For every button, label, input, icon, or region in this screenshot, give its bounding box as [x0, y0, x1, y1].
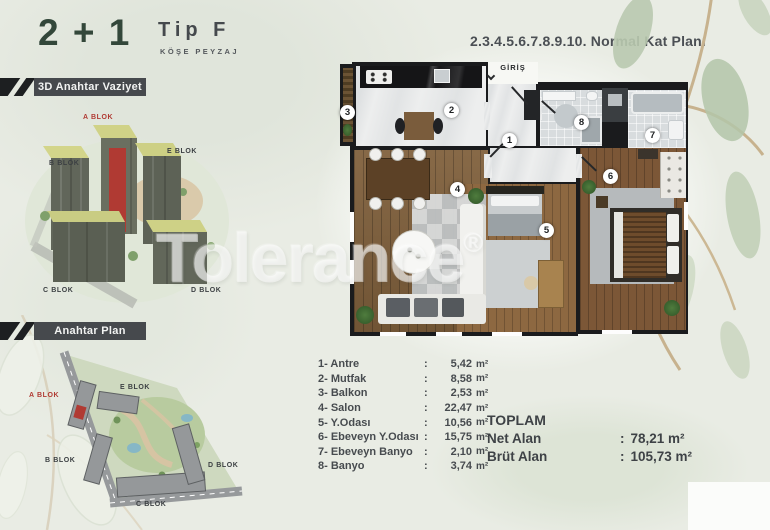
section-label-3d-key-text: 3D Anahtar Vaziyet	[38, 81, 142, 93]
room-number-7: 7	[645, 128, 660, 143]
colon: :	[424, 373, 432, 385]
render3d-label-d-blok: D BLOK	[191, 287, 221, 294]
wardrobe	[660, 152, 686, 198]
colon: :	[424, 358, 432, 370]
plant	[356, 306, 374, 324]
siteplan-label-e-blok: E BLOK	[120, 384, 150, 391]
list-item: 7- Ebeveyn Banyo:2,10m²	[318, 445, 494, 460]
room-area: 15,75	[432, 431, 472, 443]
render-3d-graphic	[15, 96, 235, 311]
render3d-label-e-blok: E BLOK	[167, 148, 197, 155]
kitchen-chair	[433, 118, 443, 134]
site-key-plan: A BLOK E BLOK B BLOK D BLOK C BLOK	[12, 340, 247, 530]
section-label-3d-key: 3D Anahtar Vaziyet	[34, 78, 146, 96]
bathroom-sink-counter	[542, 91, 576, 101]
plan-type-code: Tip F	[158, 19, 230, 42]
toilet	[586, 91, 598, 101]
bed-headboard	[486, 186, 544, 194]
area-unit: m²	[472, 373, 494, 384]
total-value: :78,21 m²	[620, 431, 685, 446]
corner-patch	[688, 482, 770, 530]
bed-blanket	[488, 214, 542, 236]
room-area: 8,58	[432, 373, 472, 385]
dresser	[638, 149, 658, 159]
plant	[582, 180, 596, 194]
section-label-key-plan: Anahtar Plan	[34, 322, 146, 340]
colon: :	[620, 449, 625, 464]
room-name: 7- Ebeveyn Banyo	[318, 446, 424, 458]
colon: :	[424, 387, 432, 399]
area-unit: m²	[472, 359, 494, 370]
window	[684, 202, 688, 230]
sofa-cushion	[442, 298, 464, 317]
total-net-area: Net Alan :78,21 m²	[487, 431, 547, 449]
room-name: 3- Balkon	[318, 387, 424, 399]
window	[350, 212, 354, 242]
siteplan-label-d-blok: D BLOK	[208, 462, 238, 469]
room-name: 1- Antre	[318, 358, 424, 370]
dining-chair	[391, 148, 404, 161]
dining-chair	[413, 197, 426, 210]
room-area-list: 1- Antre:5,42m² 2- Mutfak:8,58m² 3- Balk…	[318, 357, 494, 474]
plan-type-subtitle: KÖŞE PEYZAJ	[160, 47, 239, 56]
door-opening	[484, 102, 490, 130]
room-area: 2,10	[432, 446, 472, 458]
kitchen-table	[404, 112, 434, 140]
dining-chair	[369, 197, 382, 210]
total-label: Brüt Alan	[487, 449, 547, 464]
section-label-key-plan-text: Anahtar Plan	[54, 325, 125, 337]
render3d-label-c-blok: C BLOK	[43, 287, 73, 294]
total-value: :105,73 m²	[620, 449, 692, 464]
list-item: 3- Balkon:2,53m²	[318, 386, 494, 401]
room-name: 6- Ebeveyn Y.Odası	[318, 431, 424, 443]
kitchen-sink	[434, 69, 450, 83]
room-name: 8- Banyo	[318, 460, 424, 472]
totals-block: TOPLAM Net Alan :78,21 m² Brüt Alan :105…	[487, 412, 547, 467]
list-item: 8- Banyo:3,74m²	[318, 459, 494, 474]
sofa-cushion	[386, 298, 410, 317]
window	[350, 260, 354, 284]
room-number-2: 2	[444, 103, 459, 118]
stove	[366, 70, 392, 84]
dining-chair	[413, 148, 426, 161]
room-number-1: 1	[502, 133, 517, 148]
area-unit: m²	[472, 388, 494, 399]
dining-table	[366, 158, 430, 200]
room-number-4: 4	[450, 182, 465, 197]
hall-corridor-floor	[490, 148, 576, 182]
bathtub	[631, 92, 684, 114]
master-bed-runner	[614, 212, 623, 278]
ensuite-sink	[668, 120, 684, 140]
room-number-5: 5	[539, 223, 554, 238]
door-opening	[484, 154, 492, 178]
siteplan-label-a-blok: A BLOK	[29, 392, 59, 399]
room-name: 4- Salon	[318, 402, 424, 414]
list-item: 5- Y.Odası:10,56m²	[318, 415, 494, 430]
colon: :	[424, 460, 432, 472]
master-bed-pillow	[667, 246, 679, 274]
render-3d-key-view: A BLOK B BLOK E BLOK C BLOK D BLOK	[15, 96, 235, 311]
kitchen-chair	[395, 118, 405, 134]
desk-stool	[524, 276, 538, 290]
apartment-floor-plan: GİRİŞ	[340, 62, 688, 336]
room-number-8: 8	[574, 115, 589, 130]
washing-machine	[608, 94, 622, 106]
list-item: 2- Mutfak:8,58m²	[318, 372, 494, 387]
plant	[664, 300, 680, 316]
hall-niche	[524, 90, 540, 120]
net-area-value: 78,21 m²	[631, 431, 685, 446]
window	[602, 330, 632, 334]
entrance-label-wrap: GİRİŞ	[488, 63, 538, 72]
colon: :	[424, 446, 432, 458]
nightstand	[596, 196, 608, 208]
room-number-6: 6	[603, 169, 618, 184]
site-plan-graphic	[12, 340, 247, 530]
window	[436, 332, 462, 336]
room-area: 22,47	[432, 402, 472, 414]
colon: :	[620, 431, 625, 446]
room-area: 10,56	[432, 417, 472, 429]
coffee-table	[392, 230, 436, 274]
list-item: 6- Ebeveyn Y.Odası:15,75m²	[318, 430, 494, 445]
list-item: 4- Salon:22,47m²	[318, 401, 494, 416]
plant	[468, 188, 484, 204]
bed-pillow	[491, 196, 539, 206]
sofa-section-vertical	[460, 204, 486, 300]
colon: :	[424, 417, 432, 429]
room-area: 2,53	[432, 387, 472, 399]
window	[380, 332, 406, 336]
sofa-cushion	[414, 298, 438, 317]
window	[492, 332, 522, 336]
room-area: 5,42	[432, 358, 472, 370]
render3d-label-a-blok: A BLOK	[83, 114, 113, 121]
dining-chair	[369, 148, 382, 161]
unit-type-label: 2 + 1	[38, 12, 131, 54]
dining-chair	[391, 197, 404, 210]
room-name: 5- Y.Odası	[318, 417, 424, 429]
totals-title: TOPLAM	[487, 412, 547, 431]
siteplan-label-c-blok: C BLOK	[136, 501, 166, 508]
siteplan-label-b-blok: B BLOK	[45, 457, 75, 464]
desk	[538, 260, 564, 308]
balcony-plant	[343, 124, 352, 136]
entrance-label: GİRİŞ	[500, 63, 525, 72]
room-number-3: 3	[340, 105, 355, 120]
master-bed-pillow	[667, 214, 679, 242]
colon: :	[424, 402, 432, 414]
total-gross-area: Brüt Alan :105,73 m²	[487, 449, 547, 467]
room-area: 3,74	[432, 460, 472, 472]
total-label: Net Alan	[487, 431, 541, 446]
room-name: 2- Mutfak	[318, 373, 424, 385]
gross-area-value: 105,73 m²	[631, 449, 693, 464]
plan-sheet: 2 + 1 Tip F KÖŞE PEYZAJ 2.3.4.5.6.7.8.9.…	[0, 0, 770, 530]
render3d-label-b-blok: B BLOK	[49, 160, 79, 167]
list-item: 1- Antre:5,42m²	[318, 357, 494, 372]
colon: :	[424, 431, 432, 443]
